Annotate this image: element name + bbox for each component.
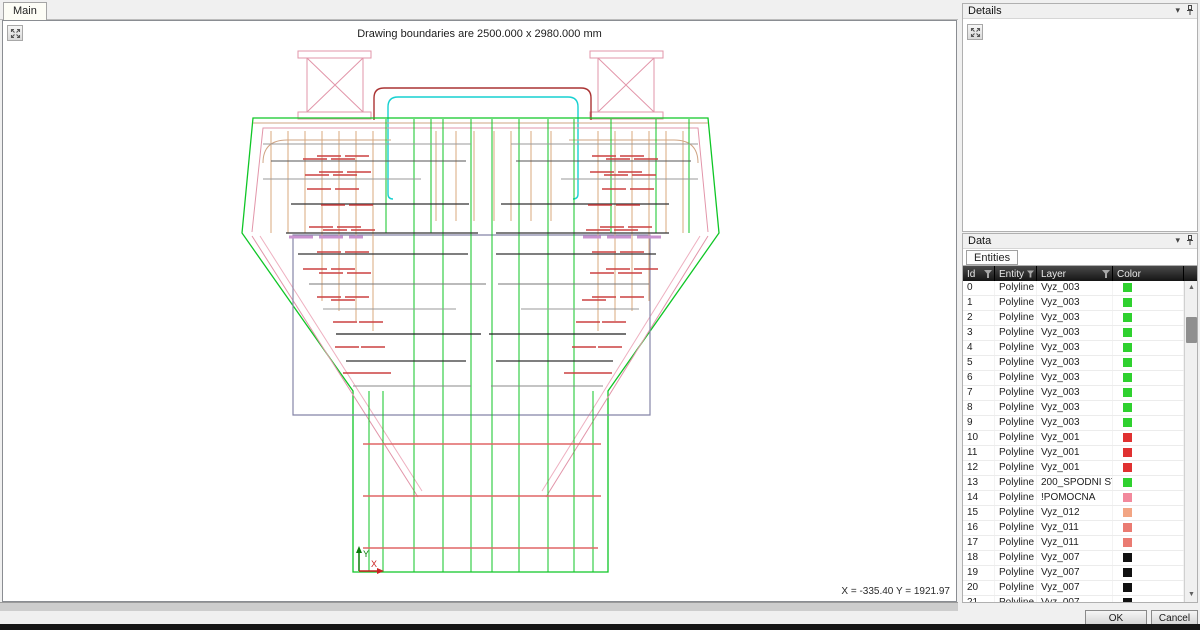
table-cell: Vyz_007 — [1037, 566, 1113, 580]
tab-main[interactable]: Main — [3, 2, 47, 20]
table-cell — [1113, 446, 1184, 460]
table-row[interactable]: 2Polyline 2DVyz_003 — [963, 311, 1184, 326]
table-cell — [1113, 311, 1184, 325]
color-swatch — [1123, 463, 1132, 472]
data-panel-header: Data ▾ — [963, 234, 1197, 249]
table-cell: Vyz_007 — [1037, 581, 1113, 595]
table-cell: Vyz_003 — [1037, 311, 1113, 325]
window-bottom-bar — [0, 624, 1200, 630]
color-swatch — [1123, 538, 1132, 547]
table-cell: Vyz_007 — [1037, 596, 1113, 602]
details-panel: Details ▾ — [962, 3, 1198, 232]
table-row[interactable]: 6Polyline 2DVyz_003 — [963, 371, 1184, 386]
drawing-boundaries-text: Drawing boundaries are 2500.000 x 2980.0… — [3, 28, 956, 40]
table-row[interactable]: 20Polyline 2DVyz_007 — [963, 581, 1184, 596]
table-cell: 5 — [963, 356, 995, 370]
table-cell — [1113, 431, 1184, 445]
scrollbar-thumb[interactable] — [1186, 317, 1197, 343]
table-cell — [1113, 521, 1184, 535]
table-row[interactable]: 21Polyline 2DVyz_007 — [963, 596, 1184, 602]
cancel-button[interactable]: Cancel — [1151, 610, 1198, 625]
table-cell — [1113, 461, 1184, 475]
table-cell: 21 — [963, 596, 995, 602]
table-cell: 3 — [963, 326, 995, 340]
color-swatch — [1123, 553, 1132, 562]
pin-icon[interactable] — [1186, 5, 1194, 16]
color-swatch — [1123, 313, 1132, 322]
table-cell: Vyz_007 — [1037, 551, 1113, 565]
table-cell: Vyz_003 — [1037, 341, 1113, 355]
table-cell — [1113, 341, 1184, 355]
table-cell: Polyline 2D — [995, 536, 1037, 550]
table-cell: 16 — [963, 521, 995, 535]
table-cell: 1 — [963, 296, 995, 310]
table-cell: 19 — [963, 566, 995, 580]
table-cell: Polyline 2D — [995, 416, 1037, 430]
color-swatch — [1123, 283, 1132, 292]
table-cell: 17 — [963, 536, 995, 550]
table-row[interactable]: 3Polyline 2DVyz_003 — [963, 326, 1184, 341]
entities-table: IdEntityLayerColor 0Polyline 2DVyz_0031P… — [963, 265, 1197, 602]
table-cell: 11 — [963, 446, 995, 460]
table-cell: Polyline 2D — [995, 281, 1037, 295]
svg-text:Y: Y — [363, 549, 369, 559]
column-header-layer[interactable]: Layer — [1037, 266, 1113, 281]
table-cell: 0 — [963, 281, 995, 295]
table-cell: Polyline 2D — [995, 371, 1037, 385]
table-cell: Vyz_003 — [1037, 281, 1113, 295]
color-swatch — [1123, 598, 1132, 602]
color-swatch — [1123, 493, 1132, 502]
table-cell: Polyline 2D — [995, 431, 1037, 445]
table-cell: 13 — [963, 476, 995, 490]
table-cell — [1113, 566, 1184, 580]
color-swatch — [1123, 298, 1132, 307]
table-cell: Polyline 2D — [995, 401, 1037, 415]
fit-arrows-icon — [970, 27, 981, 38]
table-cell: Vyz_003 — [1037, 371, 1113, 385]
table-cell: 9 — [963, 416, 995, 430]
panel-menu-icon[interactable]: ▾ — [1175, 235, 1180, 246]
data-panel: Data ▾ Entities IdEntityLayerColor 0Poly… — [962, 233, 1198, 603]
table-row[interactable]: 9Polyline 2DVyz_003 — [963, 416, 1184, 431]
table-cell — [1113, 506, 1184, 520]
table-cell: Polyline 2D — [995, 326, 1037, 340]
table-cell: Polyline 2D — [995, 356, 1037, 370]
table-cell — [1113, 476, 1184, 490]
table-cell: Polyline 2D — [995, 311, 1037, 325]
ok-button[interactable]: OK — [1085, 610, 1147, 625]
table-cell — [1113, 416, 1184, 430]
svg-text:X: X — [371, 559, 377, 569]
table-cell — [1113, 551, 1184, 565]
color-swatch — [1123, 403, 1132, 412]
table-cell — [1113, 596, 1184, 602]
table-row[interactable]: 1Polyline 2DVyz_003 — [963, 296, 1184, 311]
color-swatch — [1123, 508, 1132, 517]
details-zoom-extents-button[interactable] — [967, 24, 983, 40]
column-label: Layer — [1041, 269, 1066, 280]
table-cell: Vyz_003 — [1037, 386, 1113, 400]
main-tabstrip: Main — [0, 0, 958, 20]
table-cell: Vyz_001 — [1037, 431, 1113, 445]
table-cell: !POMOCNA — [1037, 491, 1113, 505]
column-label: Id — [967, 269, 975, 280]
table-cell: 6 — [963, 371, 995, 385]
table-row[interactable]: 17Polyline 2DVyz_011 — [963, 536, 1184, 551]
table-cell: 2 — [963, 311, 995, 325]
table-cell: Vyz_011 — [1037, 521, 1113, 535]
table-row[interactable]: 4Polyline 2DVyz_003 — [963, 341, 1184, 356]
table-cell — [1113, 536, 1184, 550]
table-cell: Vyz_003 — [1037, 401, 1113, 415]
table-row[interactable]: 10Polyline 2DVyz_001 — [963, 431, 1184, 446]
drawing-canvas[interactable]: YX Drawing boundaries are 2500.000 x 298… — [2, 20, 957, 602]
entities-table-body: 0Polyline 2DVyz_0031Polyline 2DVyz_0032P… — [963, 281, 1184, 602]
table-cell: Vyz_003 — [1037, 356, 1113, 370]
table-cell: Polyline 2D — [995, 506, 1037, 520]
table-cell: Polyline 2D — [995, 476, 1037, 490]
cad-drawing: YX — [3, 21, 956, 601]
table-cell — [1113, 371, 1184, 385]
table-cell: Polyline 2D — [995, 551, 1037, 565]
table-cell: Polyline 2D — [995, 596, 1037, 602]
scroll-up-icon[interactable]: ▲ — [1185, 281, 1197, 295]
entities-table-header: IdEntityLayerColor — [963, 266, 1197, 281]
filter-icon[interactable] — [984, 270, 992, 278]
color-swatch — [1123, 478, 1132, 487]
table-cell: 14 — [963, 491, 995, 505]
panel-menu-icon[interactable]: ▾ — [1175, 5, 1180, 16]
cursor-coordinates: X = -335.40 Y = 1921.97 — [841, 586, 950, 597]
table-cell: 7 — [963, 386, 995, 400]
table-cell: 18 — [963, 551, 995, 565]
table-cell — [1113, 491, 1184, 505]
color-swatch — [1123, 448, 1132, 457]
column-label: Color — [1117, 269, 1141, 280]
table-cell: 20 — [963, 581, 995, 595]
table-cell — [1113, 296, 1184, 310]
table-row[interactable]: 19Polyline 2DVyz_007 — [963, 566, 1184, 581]
color-swatch — [1123, 418, 1132, 427]
table-cell: 12 — [963, 461, 995, 475]
table-cell — [1113, 581, 1184, 595]
color-swatch — [1123, 373, 1132, 382]
table-row[interactable]: 11Polyline 2DVyz_001 — [963, 446, 1184, 461]
table-cell: Vyz_011 — [1037, 536, 1113, 550]
table-row[interactable]: 7Polyline 2DVyz_003 — [963, 386, 1184, 401]
table-row[interactable]: 14Polyline 2D!POMOCNA — [963, 491, 1184, 506]
table-cell — [1113, 326, 1184, 340]
table-row[interactable]: 13Polyline 2D200_SPODNI STAVBA — [963, 476, 1184, 491]
table-row[interactable]: 15Polyline 2DVyz_012 — [963, 506, 1184, 521]
table-cell: Polyline 2D — [995, 566, 1037, 580]
table-cell: Vyz_001 — [1037, 461, 1113, 475]
table-cell: 15 — [963, 506, 995, 520]
table-cell: 10 — [963, 431, 995, 445]
tab-entities[interactable]: Entities — [966, 250, 1018, 265]
bottom-strip — [0, 602, 958, 611]
table-cell: 8 — [963, 401, 995, 415]
table-cell — [1113, 281, 1184, 295]
column-header-entity[interactable]: Entity — [995, 266, 1037, 281]
column-label: Entity — [999, 269, 1024, 280]
table-cell: Vyz_003 — [1037, 296, 1113, 310]
table-cell: Polyline 2D — [995, 461, 1037, 475]
scroll-down-icon[interactable]: ▼ — [1185, 588, 1197, 602]
table-row[interactable]: 5Polyline 2DVyz_003 — [963, 356, 1184, 371]
table-row[interactable]: 0Polyline 2DVyz_003 — [963, 281, 1184, 296]
table-cell: Polyline 2D — [995, 296, 1037, 310]
table-scrollbar[interactable]: ▲ ▼ — [1184, 281, 1197, 602]
table-cell: 200_SPODNI STAVBA — [1037, 476, 1113, 490]
table-cell: Polyline 2D — [995, 581, 1037, 595]
table-cell: Vyz_003 — [1037, 416, 1113, 430]
color-swatch — [1123, 358, 1132, 367]
table-cell: Vyz_012 — [1037, 506, 1113, 520]
color-swatch — [1123, 568, 1132, 577]
table-cell: Polyline 2D — [995, 386, 1037, 400]
color-swatch — [1123, 343, 1132, 352]
filter-icon[interactable] — [1027, 270, 1034, 278]
table-cell: Polyline 2D — [995, 446, 1037, 460]
color-swatch — [1123, 433, 1132, 442]
color-swatch — [1123, 388, 1132, 397]
details-panel-header: Details ▾ — [963, 4, 1197, 19]
table-row[interactable]: 16Polyline 2DVyz_011 — [963, 521, 1184, 536]
color-swatch — [1123, 583, 1132, 592]
table-cell: Polyline 2D — [995, 341, 1037, 355]
filter-icon[interactable] — [1102, 270, 1110, 278]
pin-icon[interactable] — [1186, 235, 1194, 246]
table-row[interactable]: 12Polyline 2DVyz_001 — [963, 461, 1184, 476]
data-panel-title: Data — [968, 235, 991, 247]
table-row[interactable]: 8Polyline 2DVyz_003 — [963, 401, 1184, 416]
table-cell — [1113, 401, 1184, 415]
column-header-color[interactable]: Color — [1113, 266, 1184, 281]
table-cell: Vyz_001 — [1037, 446, 1113, 460]
table-cell — [1113, 386, 1184, 400]
table-cell: Polyline 2D — [995, 521, 1037, 535]
table-cell — [1113, 356, 1184, 370]
color-swatch — [1123, 328, 1132, 337]
table-cell: Vyz_003 — [1037, 326, 1113, 340]
table-cell: 4 — [963, 341, 995, 355]
column-header-id[interactable]: Id — [963, 266, 995, 281]
color-swatch — [1123, 523, 1132, 532]
table-cell: Polyline 2D — [995, 491, 1037, 505]
details-panel-title: Details — [968, 5, 1002, 17]
table-row[interactable]: 18Polyline 2DVyz_007 — [963, 551, 1184, 566]
